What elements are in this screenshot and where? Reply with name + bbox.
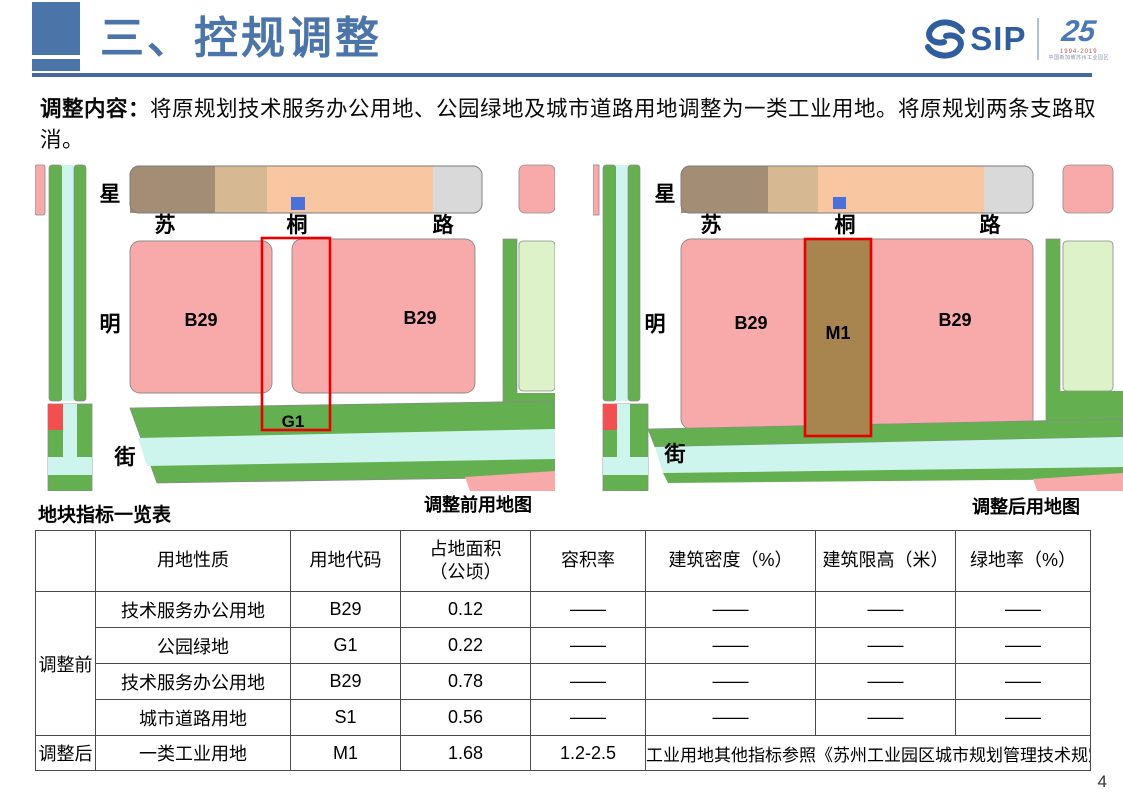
title-decoration-square — [32, 2, 80, 55]
road-label: 苏 — [701, 214, 722, 237]
cell-area: 0.12 — [401, 592, 531, 628]
header-cell-code: 用地代码 — [291, 531, 401, 592]
cell-far: —— — [531, 700, 646, 736]
header-cell-group — [36, 531, 96, 592]
header-cell-area: 占地面积 （公顷） — [401, 531, 531, 592]
right-corridor — [1046, 165, 1123, 451]
header-cell-use: 用地性质 — [96, 531, 291, 592]
cell-use: 城市道路用地 — [96, 700, 291, 736]
header-cell-height: 建筑限高（米） — [816, 531, 956, 592]
road-label: 路 — [980, 213, 1002, 237]
parcel-lightgreen — [1063, 241, 1113, 391]
parcel-code-label: G1 — [282, 412, 305, 431]
cell-use: 公园绿地 — [96, 628, 291, 664]
header-cell-far: 容积率 — [531, 531, 646, 592]
blue-marker — [833, 197, 846, 209]
cell-density: —— — [646, 628, 816, 664]
road-label: 苏 — [155, 214, 176, 237]
parcel-code-label: B29 — [403, 308, 436, 328]
table-title: 地块指标一览表 — [38, 500, 171, 527]
cell-code: B29 — [291, 664, 401, 700]
cell-far: —— — [531, 592, 646, 628]
group-label-before: 调整前 — [36, 592, 96, 736]
header-cell-density: 建筑密度（%） — [646, 531, 816, 592]
north-parcel-band — [681, 166, 1033, 213]
logo-divider — [1037, 18, 1039, 60]
page-number: 4 — [1098, 772, 1107, 792]
parcel-lightgreen — [519, 241, 555, 391]
left-corridor — [593, 165, 648, 491]
intro-label: 调整内容： — [40, 97, 150, 121]
header-divider-line — [32, 73, 1092, 77]
street-label: 明 — [100, 313, 121, 336]
blue-marker — [291, 197, 305, 210]
cell-height: —— — [816, 628, 956, 664]
before-map: 星 苏 桐 路 明 B29 B29 G1 街 — [35, 161, 555, 491]
cell-green: —— — [956, 664, 1091, 700]
sip-swirl-icon — [922, 17, 968, 61]
road-label: 桐 — [835, 214, 856, 237]
cell-code: G1 — [291, 628, 401, 664]
cell-density: —— — [646, 700, 816, 736]
cell-height: —— — [816, 592, 956, 628]
street-label: 明 — [645, 313, 666, 336]
cell-far: 1.2-2.5 — [531, 736, 646, 771]
anniversary-logo: 25 1994-2019 中国新加坡苏州工业园区 — [1048, 17, 1109, 61]
road-label: 桐 — [287, 214, 308, 237]
street-label: 街 — [114, 445, 136, 469]
street-label: 街 — [664, 442, 686, 466]
cell-height: —— — [816, 664, 956, 700]
parcel-code-label: B29 — [184, 310, 217, 330]
north-parcel-band — [130, 166, 482, 213]
title-decoration-bar — [32, 59, 80, 71]
cell-area: 1.68 — [401, 736, 531, 771]
parcel-code-label: M1 — [825, 323, 850, 343]
table-header-row: 用地性质 用地代码 占地面积 （公顷） 容积率 建筑密度（%） 建筑限高（米） … — [36, 531, 1091, 592]
cell-code: B29 — [291, 592, 401, 628]
cell-density: —— — [646, 664, 816, 700]
adjustment-intro: 调整内容：将原规划技术服务办公用地、公园绿地及城市道路用地调整为一类工业用地。将… — [40, 94, 1100, 156]
table-row-after: 调整后 一类工业用地 M1 1.68 1.2-2.5 工业用地其他指标参照《苏州… — [36, 736, 1091, 771]
road-label: 路 — [433, 213, 455, 237]
cell-use: 一类工业用地 — [96, 736, 291, 771]
intro-text: 将原规划技术服务办公用地、公园绿地及城市道路用地调整为一类工业用地。将原规划两条… — [40, 97, 1096, 152]
cell-area: 0.22 — [401, 628, 531, 664]
parcel-code-label: B29 — [734, 313, 767, 333]
cell-use: 技术服务办公用地 — [96, 592, 291, 628]
page-title: 三、控规调整 — [100, 2, 382, 66]
cell-density: —— — [646, 592, 816, 628]
table-row: 城市道路用地 S1 0.56 —— —— —— —— — [36, 700, 1091, 736]
slide: 三、控规调整 SIP 25 1994-2019 中国新加坡苏州工业园区 调整内容… — [0, 0, 1123, 794]
cell-note: 工业用地其他指标参照《苏州工业园区城市规划管理技术规定》 — [646, 736, 1091, 771]
cell-area: 0.56 — [401, 700, 531, 736]
cell-area: 0.78 — [401, 664, 531, 700]
header-cell-green: 绿地率（%） — [956, 531, 1091, 592]
red-marker-parcel — [603, 404, 617, 430]
cell-code: M1 — [291, 736, 401, 771]
sip-logo: SIP 25 1994-2019 中国新加坡苏州工业园区 — [922, 12, 1109, 66]
sip-logo-text: SIP — [970, 20, 1026, 58]
left-corridor — [35, 165, 92, 491]
group-label-after: 调整后 — [36, 736, 96, 771]
after-map: 星 苏 桐 路 明 B29 M1 B29 街 — [593, 161, 1123, 491]
cell-green: —— — [956, 592, 1091, 628]
cell-green: —— — [956, 628, 1091, 664]
cell-far: —— — [531, 664, 646, 700]
plot-indicator-table: 用地性质 用地代码 占地面积 （公顷） 容积率 建筑密度（%） 建筑限高（米） … — [35, 530, 1091, 771]
anniversary-org-text: 中国新加坡苏州工业园区 — [1048, 56, 1109, 61]
anniversary-number: 25 — [1060, 17, 1098, 47]
cell-far: —— — [531, 628, 646, 664]
after-map-caption: 调整后用地图 — [972, 493, 1080, 519]
red-marker-parcel — [48, 404, 63, 430]
table-row: 技术服务办公用地 B29 0.78 —— —— —— —— — [36, 664, 1091, 700]
table-row: 公园绿地 G1 0.22 —— —— —— —— — [36, 628, 1091, 664]
cell-code: S1 — [291, 700, 401, 736]
cell-green: —— — [956, 700, 1091, 736]
before-map-caption: 调整前用地图 — [424, 491, 532, 517]
parcel-b29-right — [292, 239, 475, 393]
street-label: 星 — [100, 183, 121, 206]
table-row: 调整前 技术服务办公用地 B29 0.12 —— —— —— —— — [36, 592, 1091, 628]
cell-use: 技术服务办公用地 — [96, 664, 291, 700]
street-label: 星 — [655, 183, 676, 206]
cell-height: —— — [816, 700, 956, 736]
parcel-code-label: B29 — [938, 310, 971, 330]
